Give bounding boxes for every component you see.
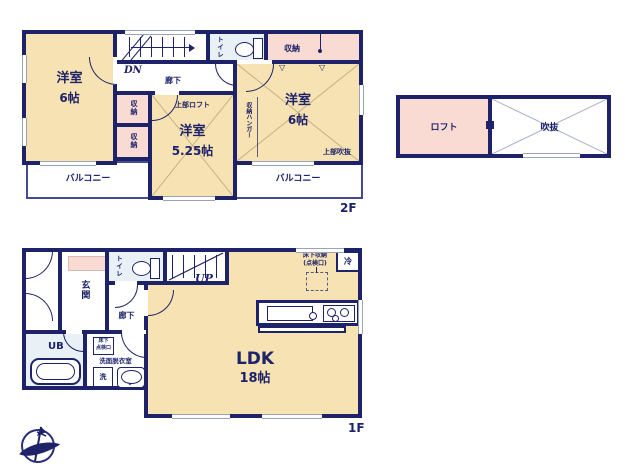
balcony-left: バルコニー (26, 161, 150, 199)
balcony-left-label: バルコニー (28, 174, 148, 184)
stairs-up-label: UP (195, 273, 213, 286)
floor1-label: 1F (348, 422, 365, 436)
hatch-line1: 床下 (94, 339, 113, 345)
entrance-hall: 玄関 (58, 248, 109, 334)
toilet-bowl-icon (132, 261, 151, 276)
underfloor-storage-line2: (点検口) (292, 261, 338, 268)
room-2f-center-size: 5.25帖 (152, 145, 233, 159)
shoe-cabinet (68, 256, 107, 271)
toilet-2f: トイレ (206, 30, 268, 64)
balcony-right-label: バルコニー (235, 174, 361, 184)
closet-2f-top-label: 収納 (284, 44, 300, 53)
kitchen-sink-icon (267, 306, 313, 321)
faucet-icon (309, 312, 317, 320)
bathtub-inner-icon (36, 363, 75, 380)
counter-front (258, 326, 346, 333)
void-label: 吹抜 (492, 123, 607, 133)
refrigerator-label: 冷 (338, 257, 358, 266)
basin-bowl-icon (121, 370, 142, 384)
void-room: 吹抜 (488, 95, 611, 158)
stair-arrow-head (189, 44, 195, 52)
closet-2f-b-label: 収納 (130, 133, 138, 149)
window-marker (163, 196, 215, 201)
wall-opening (237, 60, 255, 64)
washroom-label: 洗面脱衣室 (87, 358, 144, 365)
toilet-1f: トイレ (105, 248, 167, 285)
closet-2f-top: 収納 (264, 30, 363, 64)
closet-2f-b: 収納 (113, 123, 152, 161)
toilet-tank-icon (253, 38, 263, 59)
burner-icon (332, 315, 339, 322)
window-marker (523, 153, 580, 158)
room-2f-west-left: 洋室 6帖 (22, 30, 117, 165)
hall-2f-label: 廊下 (165, 76, 181, 85)
loft-room: ロフト (396, 95, 492, 158)
window-marker (22, 55, 27, 83)
washbasin-icon (117, 367, 145, 388)
balcony-right: バルコニー (233, 161, 363, 199)
closet-2f-a-label: 収納 (130, 100, 138, 116)
window-marker (125, 30, 195, 35)
loft-label: ロフト (400, 123, 488, 133)
toilet-2f-label: トイレ (215, 36, 222, 59)
window-marker (40, 161, 96, 166)
upper-void-label: 上部吹抜 (323, 148, 351, 156)
ldk-size: 18帖 (225, 372, 285, 387)
window-marker (172, 414, 230, 419)
room-2f-east-size: 6帖 (237, 114, 359, 128)
window-marker (262, 414, 322, 419)
stove-icon (323, 305, 355, 322)
window-marker (252, 161, 314, 166)
refrigerator: 冷 (336, 251, 360, 272)
floor2-label: 2F (340, 202, 357, 216)
toilet-tank-icon (150, 258, 160, 279)
window-marker (359, 85, 364, 115)
washer-label: 洗 (94, 373, 112, 381)
underfloor-hatch-washroom: 床下 点検口 (93, 337, 114, 355)
closet-2f-a: 収納 (113, 91, 152, 127)
ldk-name: LDK (225, 350, 285, 370)
entrance-label: 玄関 (79, 280, 89, 300)
hanger-pipe-icon (320, 34, 321, 49)
bathtub-icon (30, 358, 81, 385)
unit-bath-label: UB (48, 341, 64, 353)
hanger-hook-icon (318, 49, 322, 53)
room-2f-east-name: 洋室 (237, 94, 359, 109)
floorplan-canvas: バルコニー バルコニー 洋室 6帖 トイレ 収納 DN 廊下 収納 収納 (0, 0, 640, 476)
underfloor-hatch-box (306, 272, 328, 291)
wall-post (486, 121, 494, 129)
burner-icon (340, 308, 349, 317)
window-marker (358, 300, 363, 334)
kitchen-counter (256, 300, 360, 326)
room-2f-center-name: 洋室 (152, 125, 233, 140)
compass-icon (8, 416, 72, 474)
hatch-line2: 点検口 (94, 346, 113, 352)
room-2f-left-size: 6帖 (26, 92, 113, 106)
window-marker (296, 248, 344, 253)
toilet-1f-label: トイレ (114, 255, 121, 278)
stairs-dn-label: DN (124, 65, 142, 77)
hatch-tick (316, 267, 317, 273)
toilet-bowl-icon (235, 42, 254, 57)
sliding-door-marker-icon: ▽ (279, 63, 285, 72)
sliding-door-marker-icon: ▽ (319, 63, 325, 72)
washer-box: 洗 (93, 367, 113, 387)
window-marker (22, 118, 27, 146)
underfloor-storage-line1: 床下収納 (292, 253, 338, 260)
basin-drain-icon (129, 383, 131, 385)
hall-1f-label: 廊下 (109, 311, 144, 320)
